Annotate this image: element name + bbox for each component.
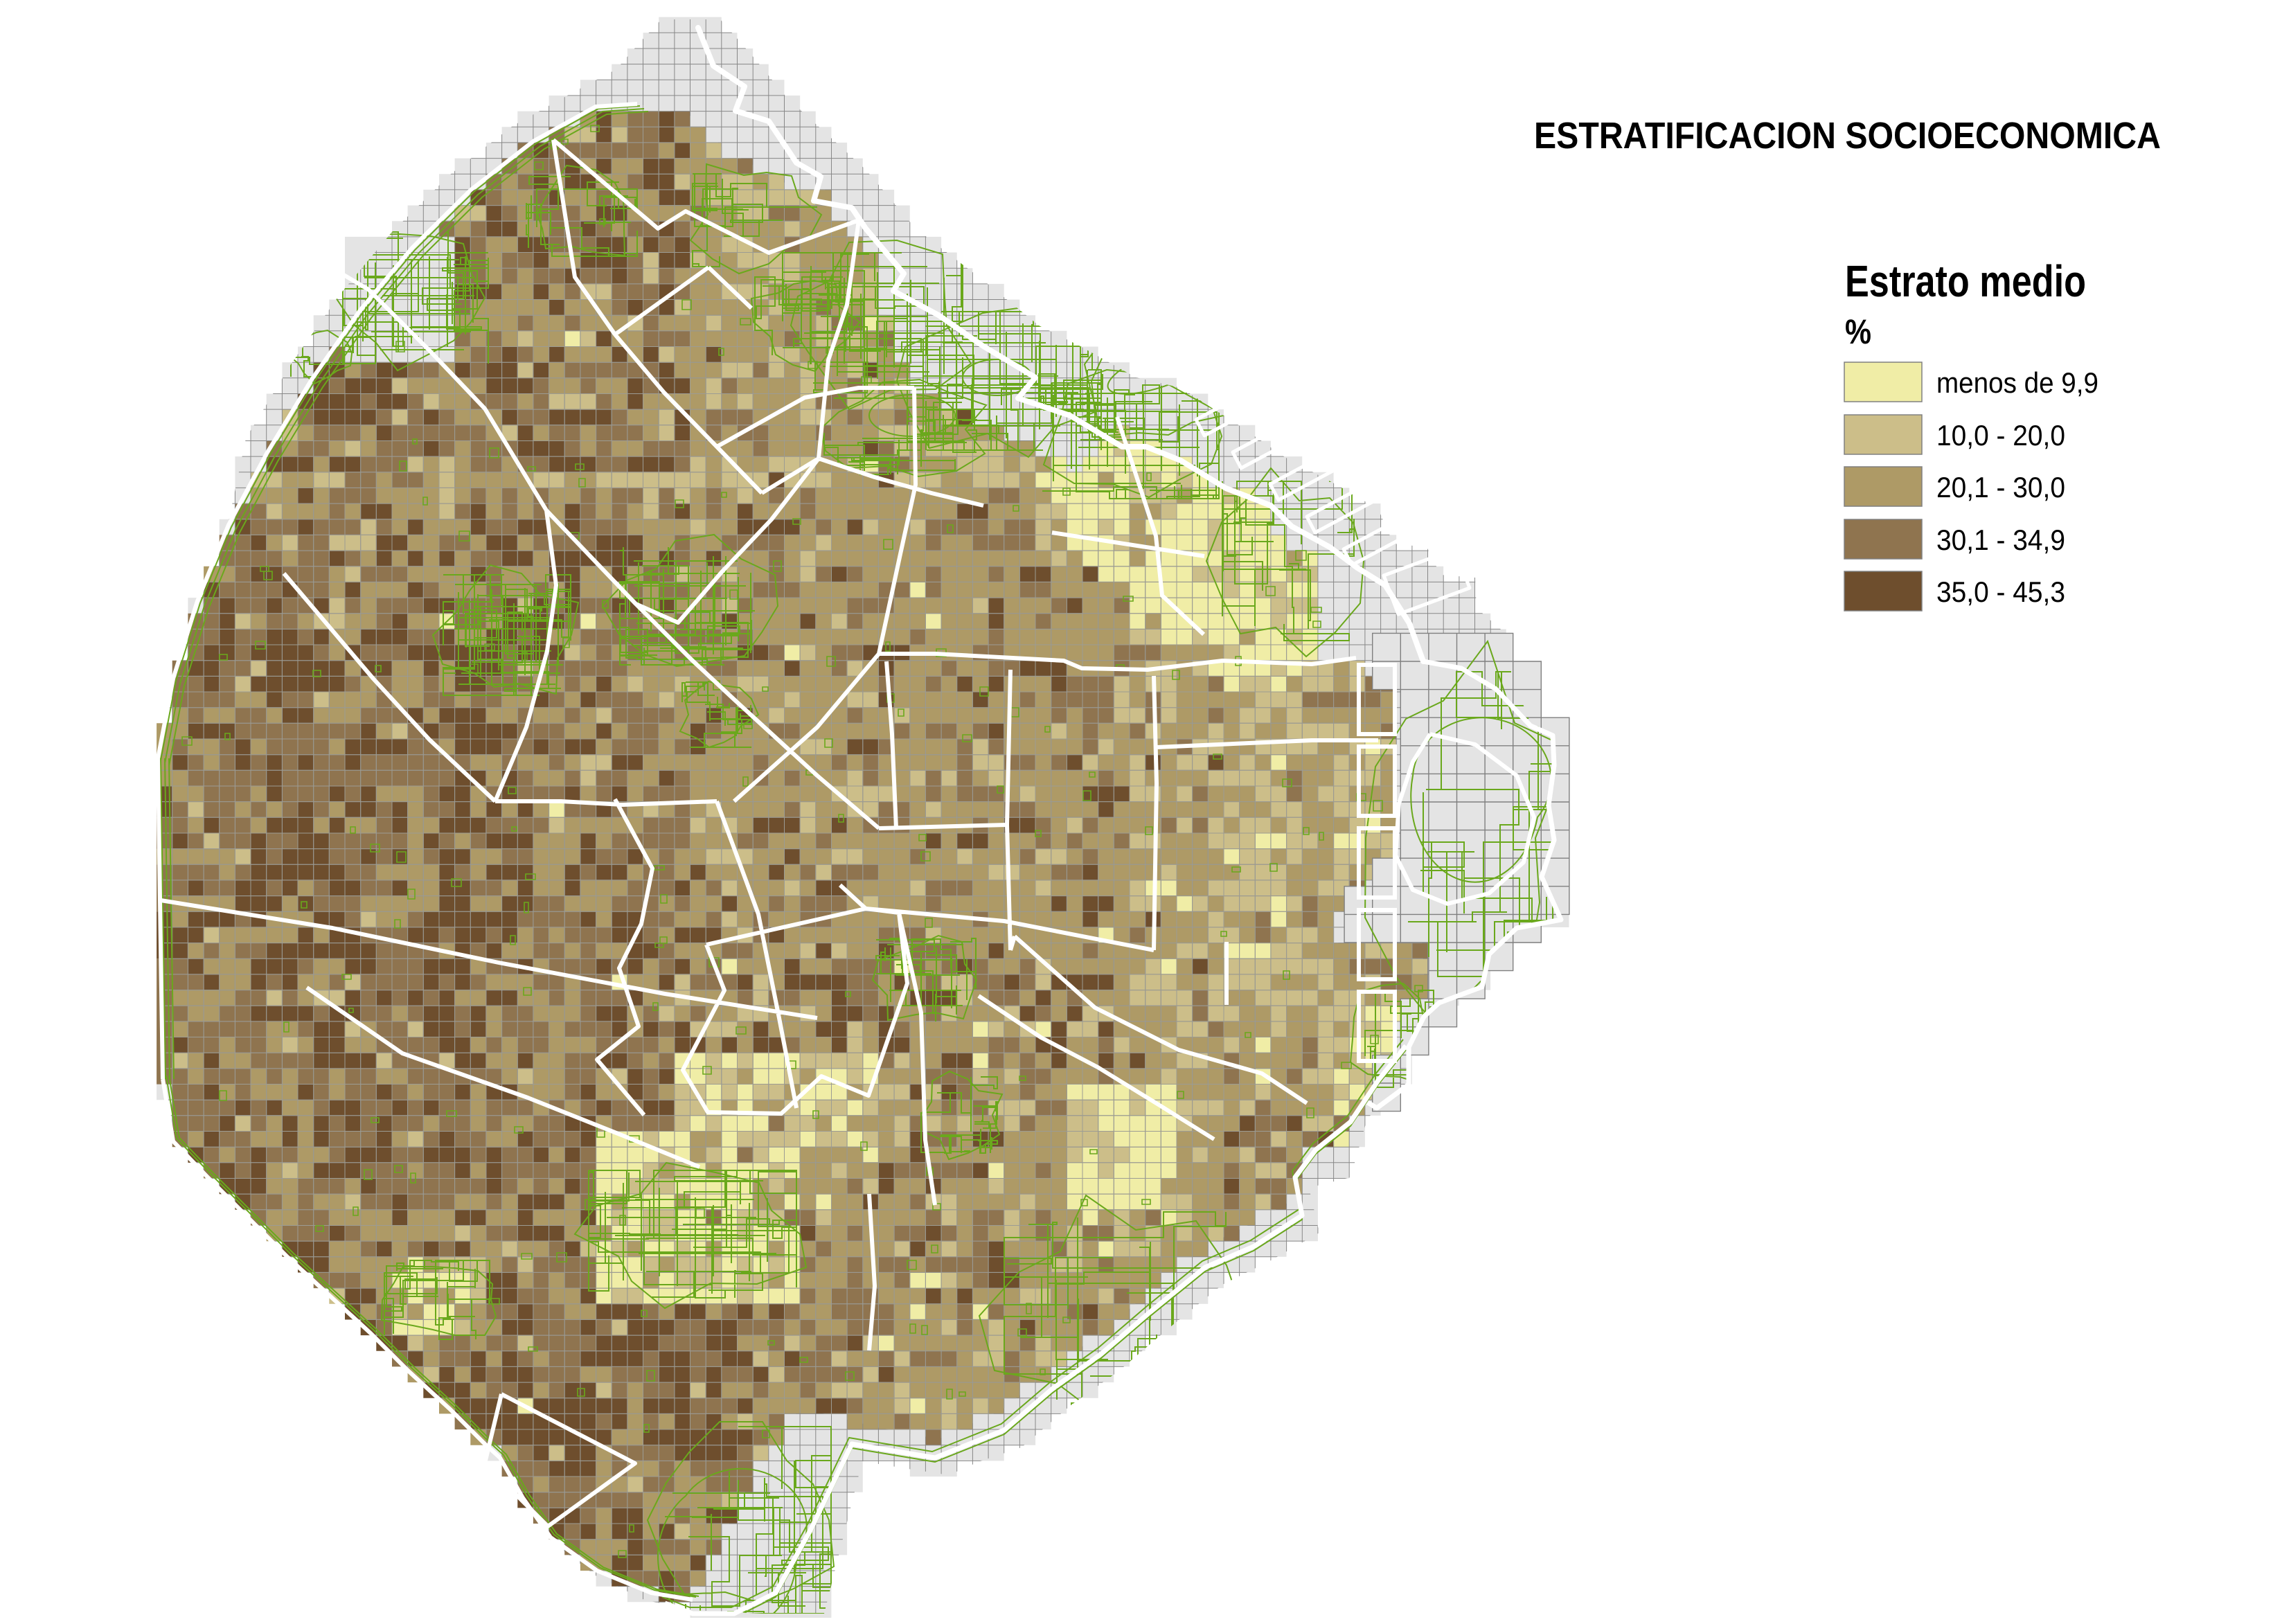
svg-text:ESTRATIFICACION SOCIOECONOMICA: ESTRATIFICACION SOCIOECONOMICA	[1534, 115, 2161, 157]
svg-text:Estrato medio: Estrato medio	[1845, 256, 2086, 306]
svg-text:35,0 - 45,3: 35,0 - 45,3	[1936, 575, 2065, 608]
svg-text:10,0 - 20,0: 10,0 - 20,0	[1936, 419, 2065, 452]
svg-text:20,1 - 30,0: 20,1 - 30,0	[1936, 471, 2065, 503]
svg-text:menos de 9,9: menos de 9,9	[1936, 366, 2098, 399]
svg-text:%: %	[1845, 312, 1871, 351]
svg-text:30,1 - 34,9: 30,1 - 34,9	[1936, 524, 2065, 556]
